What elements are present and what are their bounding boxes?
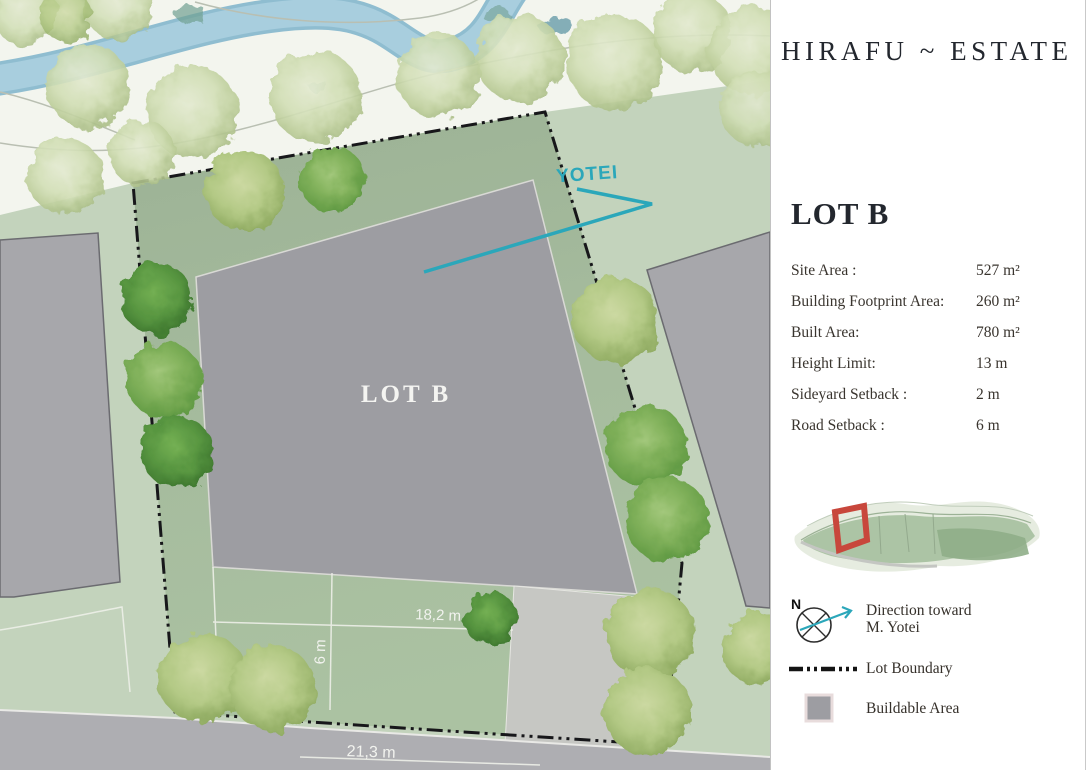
spec-row-site-area: Site Area : 527 m²	[791, 258, 1071, 289]
spec-table: Site Area : 527 m² Building Footprint Ar…	[791, 258, 1071, 444]
spec-label: Height Limit:	[791, 355, 876, 373]
spec-value: 260 m²	[976, 293, 1020, 311]
dim-18-2m: 18,2 m	[415, 606, 461, 625]
info-panel: HIRAFU ~ ESTATE LOT B Site Area : 527 m²…	[770, 0, 1086, 770]
site-plan-map: YOTEI LOT B 18,2 m 6 m 21,3 m	[0, 0, 770, 770]
spec-value: 2 m	[976, 386, 1000, 404]
estate-title: HIRAFU ~ ESTATE	[781, 36, 1072, 67]
spec-row-footprint: Building Footprint Area: 260 m²	[791, 289, 1071, 320]
lot-b-map-label: LOT B	[361, 381, 451, 408]
direction-line2: M. Yotei	[866, 619, 971, 636]
north-label: N	[791, 596, 801, 612]
spec-row-sideyard-setback: Sideyard Setback : 2 m	[791, 382, 1071, 413]
spec-value: 13 m	[976, 355, 1007, 373]
spec-row-road-setback: Road Setback : 6 m	[791, 413, 1071, 444]
spec-row-built-area: Built Area: 780 m²	[791, 320, 1071, 351]
direction-legend-label: Direction toward M. Yotei	[866, 602, 971, 636]
spec-value: 6 m	[976, 417, 1000, 435]
spec-label: Road Setback :	[791, 417, 885, 435]
spec-value: 780 m²	[976, 324, 1020, 342]
spec-label: Building Footprint Area:	[791, 293, 944, 311]
buildable-area-legend-label: Buildable Area	[866, 700, 959, 718]
spec-label: Site Area :	[791, 262, 856, 280]
lot-boundary-sample	[787, 660, 859, 676]
buildable-area-swatch	[803, 692, 835, 724]
spec-label: Sideyard Setback :	[791, 386, 907, 404]
lot-boundary-legend-label: Lot Boundary	[866, 660, 953, 678]
lot-heading: LOT B	[791, 196, 889, 232]
site-plan-svg: YOTEI LOT B 18,2 m 6 m 21,3 m	[0, 0, 770, 770]
dim-21-3m: 21,3 m	[346, 743, 395, 762]
dim-6m: 6 m	[312, 639, 330, 665]
direction-line1: Direction toward	[866, 602, 971, 619]
neighbor-lot-left	[0, 233, 120, 597]
spec-row-height-limit: Height Limit: 13 m	[791, 351, 1071, 382]
compass-icon: N	[789, 596, 864, 650]
page-right-edge	[1085, 0, 1086, 770]
spec-label: Built Area:	[791, 324, 859, 342]
spec-value: 527 m²	[976, 262, 1020, 280]
yotei-label: YOTEI	[556, 162, 619, 187]
estate-minimap	[787, 478, 1051, 586]
